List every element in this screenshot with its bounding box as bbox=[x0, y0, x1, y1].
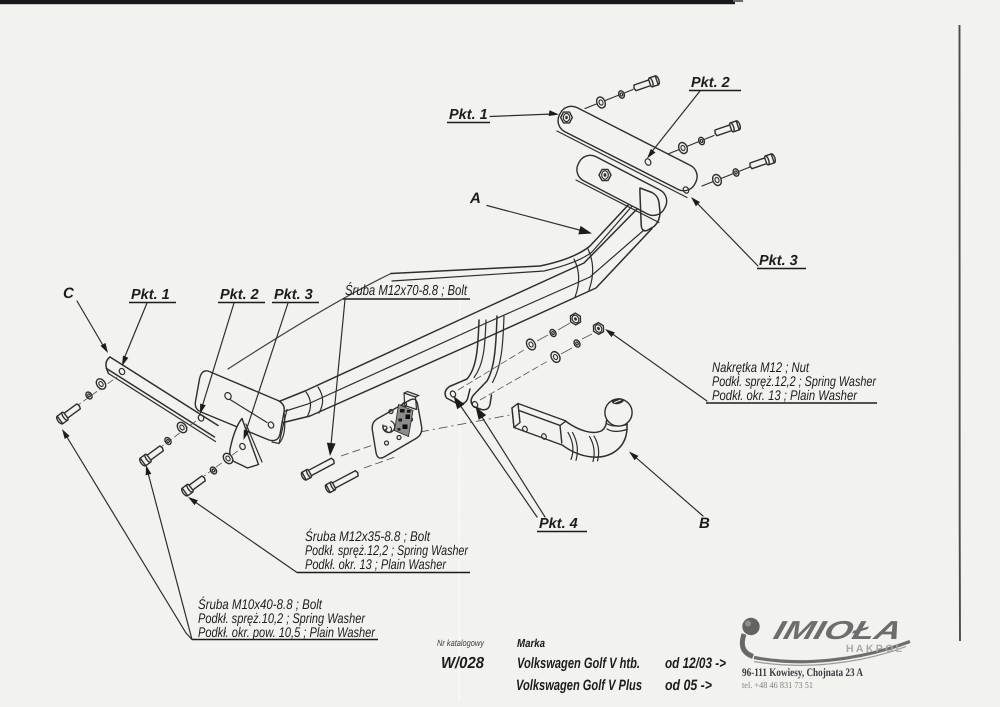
svg-text:Pkt. 3: Pkt. 3 bbox=[759, 253, 798, 269]
svg-text:Śruba M12x70-8.8 ; Bolt: Śruba M12x70-8.8 ; Bolt bbox=[345, 282, 468, 299]
svg-text:C: C bbox=[63, 285, 75, 302]
svg-text:Pkt. 2: Pkt. 2 bbox=[220, 287, 259, 303]
svg-text:Marka: Marka bbox=[517, 637, 545, 650]
svg-text:Pkt. 4: Pkt. 4 bbox=[539, 516, 578, 532]
svg-text:B: B bbox=[699, 515, 710, 532]
svg-text:od 05 ->: od 05 -> bbox=[665, 677, 712, 694]
svg-text:IMIOŁA: IMIOŁA bbox=[770, 615, 906, 645]
svg-text:Pkt. 1: Pkt. 1 bbox=[449, 107, 488, 123]
svg-text:Volkswagen Golf V Plus: Volkswagen Golf V Plus bbox=[516, 677, 642, 694]
svg-text:Pkt. 2: Pkt. 2 bbox=[691, 75, 730, 91]
svg-text:W/028: W/028 bbox=[441, 655, 484, 672]
svg-text:Volkswagen Golf V htb.: Volkswagen Golf V htb. bbox=[517, 655, 640, 672]
svg-text:Pkt. 3: Pkt. 3 bbox=[274, 287, 313, 303]
svg-text:A: A bbox=[469, 190, 481, 207]
svg-text:Podkł. okr. 13 ; Plain Washer: Podkł. okr. 13 ; Plain Washer bbox=[712, 387, 858, 403]
svg-text:Podkł. okr. 13 ; Plain Washer: Podkł. okr. 13 ; Plain Washer bbox=[305, 556, 447, 572]
svg-text:Pkt. 1: Pkt. 1 bbox=[131, 287, 170, 303]
svg-text:Podkł. okr. pow. 10,5 ; Plain: Podkł. okr. pow. 10,5 ; Plain Washer bbox=[198, 624, 376, 640]
svg-text:Nr katalogowy: Nr katalogowy bbox=[437, 638, 484, 648]
svg-text:96-111 Kowiesy, Chojnata 23 A: 96-111 Kowiesy, Chojnata 23 A bbox=[742, 667, 864, 679]
svg-text:tel. +48 46 831 73 51: tel. +48 46 831 73 51 bbox=[742, 680, 813, 690]
svg-text:od 12/03 ->: od 12/03 -> bbox=[665, 655, 726, 672]
